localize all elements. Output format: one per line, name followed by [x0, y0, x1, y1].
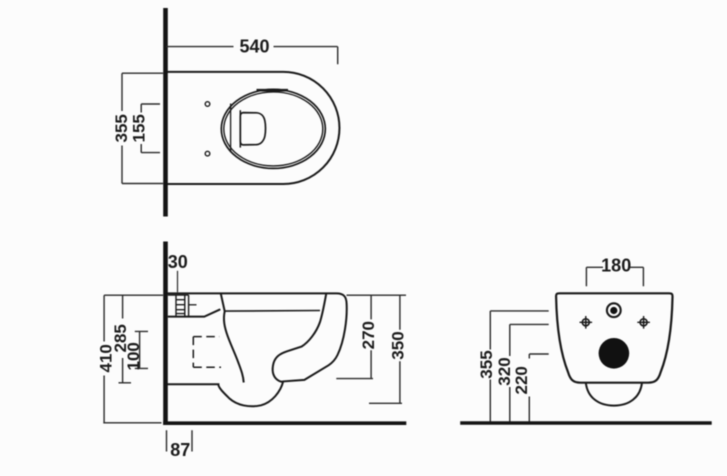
svg-text:30: 30 — [168, 252, 188, 272]
svg-text:350: 350 — [389, 331, 408, 359]
svg-text:100: 100 — [124, 342, 143, 370]
svg-text:355: 355 — [112, 114, 131, 142]
svg-text:270: 270 — [359, 321, 378, 349]
svg-text:220: 220 — [512, 366, 531, 394]
svg-text:180: 180 — [601, 256, 631, 276]
svg-text:155: 155 — [130, 114, 149, 142]
svg-text:355: 355 — [477, 350, 496, 378]
svg-text:540: 540 — [239, 37, 269, 57]
svg-text:87: 87 — [170, 440, 190, 460]
